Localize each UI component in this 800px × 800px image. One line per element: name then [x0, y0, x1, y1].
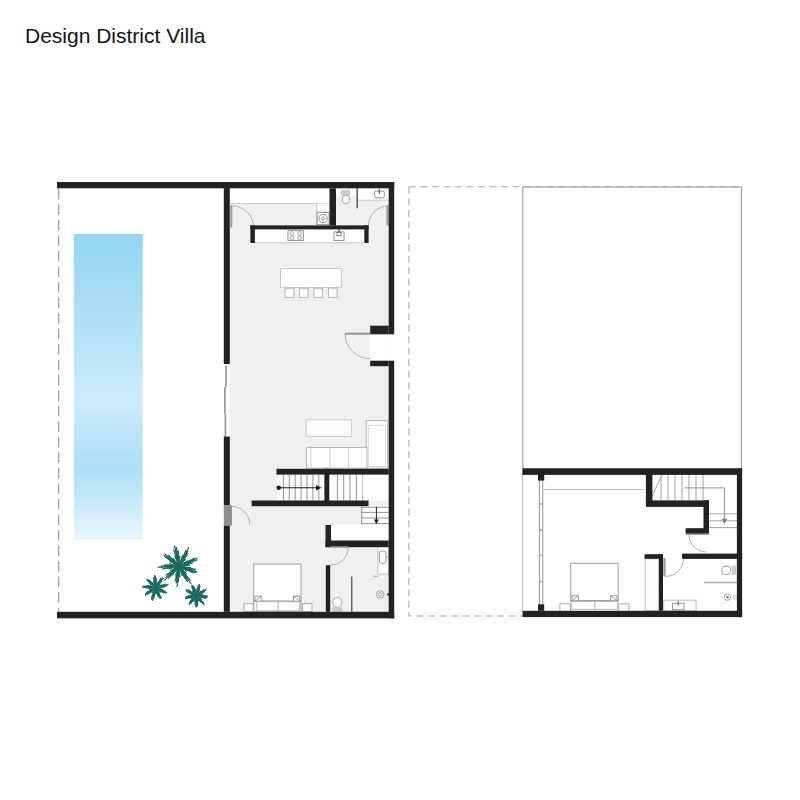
- svg-text:Design District Villa: Design District Villa: [25, 24, 206, 47]
